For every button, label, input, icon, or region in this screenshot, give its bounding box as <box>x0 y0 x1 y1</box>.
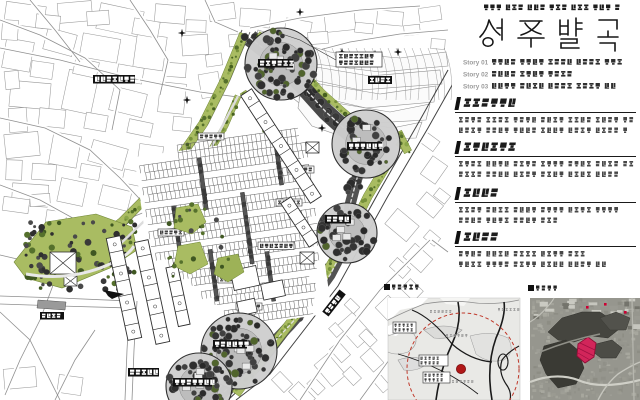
svg-text:Story 02: Story 02 <box>463 72 489 79</box>
svg-text:Story 03: Story 03 <box>463 84 489 91</box>
svg-text:Story 01: Story 01 <box>463 60 489 67</box>
